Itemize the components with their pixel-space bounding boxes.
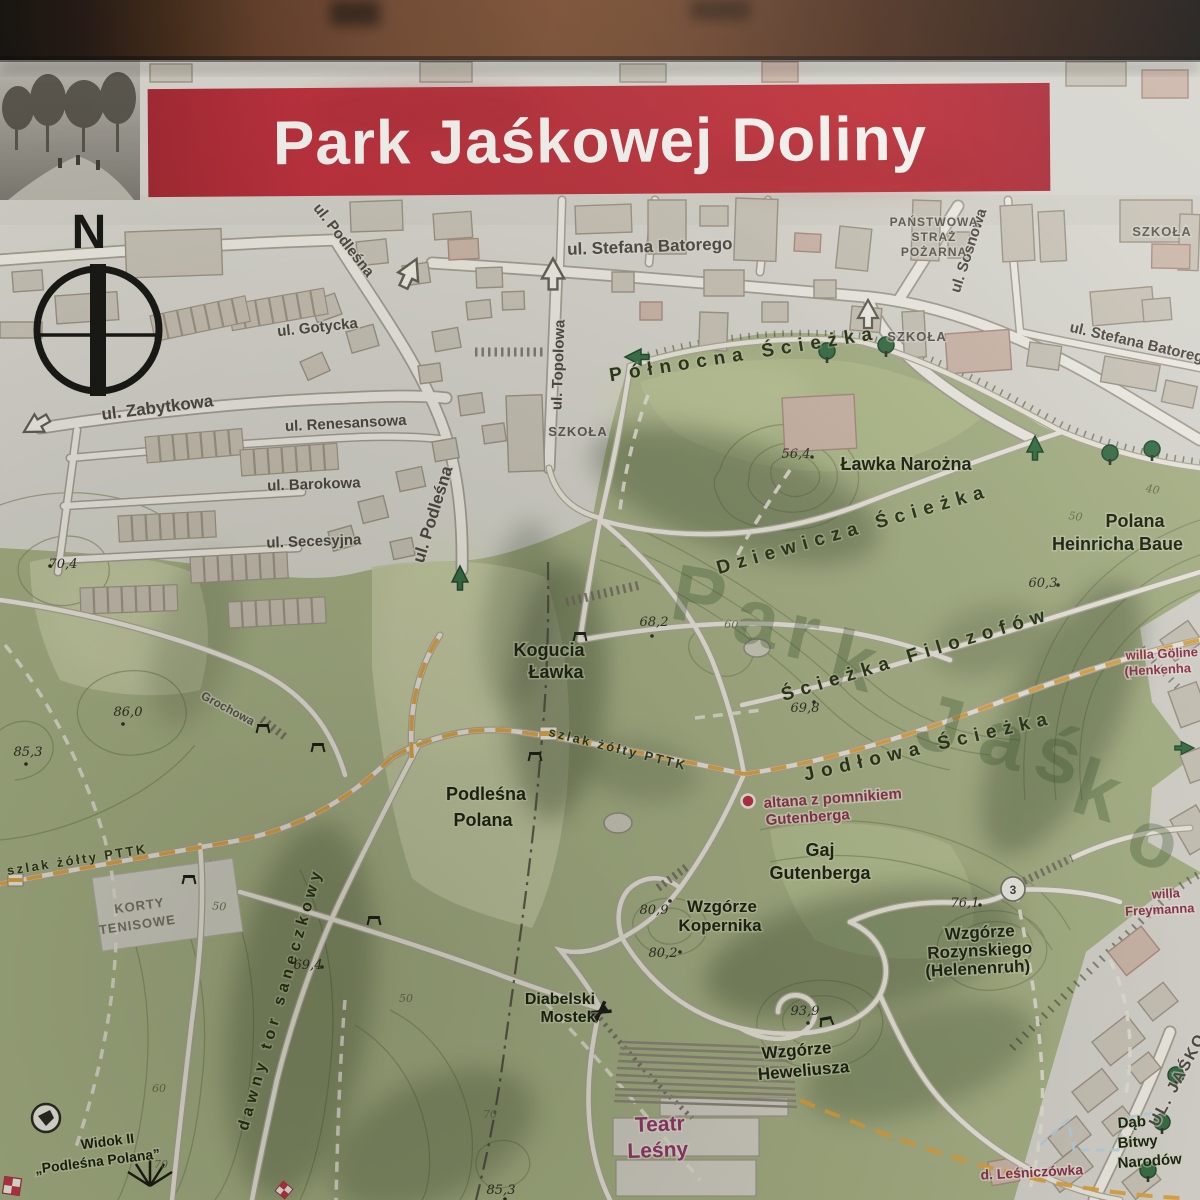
contour-label: 40 bbox=[1144, 482, 1161, 497]
spot-height: 85,3 bbox=[14, 745, 43, 760]
spot-height: 56,4 bbox=[782, 447, 811, 462]
school-label-ne: SZKOŁA bbox=[1132, 224, 1191, 239]
contour-label: 60 bbox=[724, 617, 739, 631]
place-kopernika-1: Wzgórze bbox=[687, 897, 757, 916]
fire-station-label-1: PAŃSTWOWA bbox=[890, 214, 979, 229]
route-3-marker: 3 bbox=[1001, 877, 1025, 901]
spot-height: 80,2 bbox=[649, 946, 678, 961]
contour-label: 50 bbox=[212, 899, 227, 913]
spot-height: 69,4 bbox=[294, 958, 323, 973]
contour-label: 60 bbox=[152, 1082, 166, 1095]
place-podlesna-polana-1: Podleśna bbox=[446, 784, 527, 804]
place-polana-heinricha-2: Heinricha Baue bbox=[1052, 534, 1183, 554]
route-3-number: 3 bbox=[1010, 883, 1017, 897]
altana-marker-dot bbox=[742, 795, 755, 808]
spot-height: 80,9 bbox=[640, 903, 669, 918]
place-lawka-narozna: Ławka Narożna bbox=[840, 454, 972, 474]
photo-inset bbox=[0, 60, 140, 200]
place-kopernika-2: Kopernika bbox=[678, 916, 762, 935]
place-podlesna-polana-2: Polana bbox=[453, 810, 513, 830]
map-canvas: 3 P a r k J a ś k o ul. Podleśna ul. Ste… bbox=[0, 0, 1200, 1200]
park-map-board: 3 P a r k J a ś k o ul. Podleśna ul. Ste… bbox=[0, 0, 1200, 1200]
street-label-barokowa: ul. Barokowa bbox=[267, 474, 362, 494]
attraction-willa-freymanna-1: willa bbox=[1150, 885, 1181, 902]
place-polana-heinricha-1: Polana bbox=[1105, 511, 1165, 531]
attraction-teatr-2: Leśny bbox=[627, 1138, 689, 1163]
street-label-secesyjna: ul. Secesyjna bbox=[266, 531, 362, 551]
place-dab-2: Bitwy bbox=[1117, 1132, 1159, 1152]
compass-needle bbox=[90, 264, 106, 396]
board-title: Park Jaśkowej Doliny bbox=[273, 105, 928, 179]
contour-label: 50 bbox=[399, 992, 413, 1005]
school-label-w: SZKOŁA bbox=[548, 424, 607, 439]
title-banner: Park Jaśkowej Doliny bbox=[148, 83, 1051, 197]
spot-height: 93,9 bbox=[791, 1004, 820, 1019]
place-gaj-1: Gaj bbox=[805, 840, 834, 860]
place-dab-1: Dąb bbox=[1117, 1113, 1146, 1132]
fire-station-label-2: STRAŻ bbox=[912, 229, 957, 244]
place-kogucia-2: Ławka bbox=[528, 662, 584, 682]
spot-height: 68,2 bbox=[640, 615, 669, 630]
wood-frame-top bbox=[0, 0, 1200, 72]
place-diabelski-1: Diabelski bbox=[525, 991, 595, 1008]
gazebo-oval bbox=[604, 813, 632, 833]
spot-height: 60,3 bbox=[1029, 576, 1058, 591]
contour-label: 70 bbox=[483, 1108, 497, 1121]
school-label-mid: SZKOŁA bbox=[887, 329, 946, 344]
street-label-topolowa: ul. Topolowa bbox=[548, 319, 568, 411]
place-kogucia-1: Kogucia bbox=[513, 640, 585, 660]
attraction-teatr-1: Teatr bbox=[634, 1112, 685, 1137]
trail-marker-checker bbox=[3, 1177, 22, 1196]
compass-north-label: N bbox=[72, 206, 107, 259]
place-gaj-2: Gutenberga bbox=[769, 863, 871, 883]
spot-height: 85,3 bbox=[487, 1183, 516, 1198]
contour-label: 50 bbox=[1068, 509, 1084, 524]
fire-station-label-3: POŻARNA bbox=[901, 244, 967, 259]
contour-label: 70 bbox=[154, 1158, 168, 1171]
spot-height: 76,1 bbox=[951, 896, 980, 911]
viewpoint-icon bbox=[32, 1104, 60, 1132]
place-diabelski-2: Mostek bbox=[540, 1009, 595, 1026]
spot-height: 70,4 bbox=[49, 557, 78, 572]
spot-height: 86,0 bbox=[114, 705, 143, 720]
